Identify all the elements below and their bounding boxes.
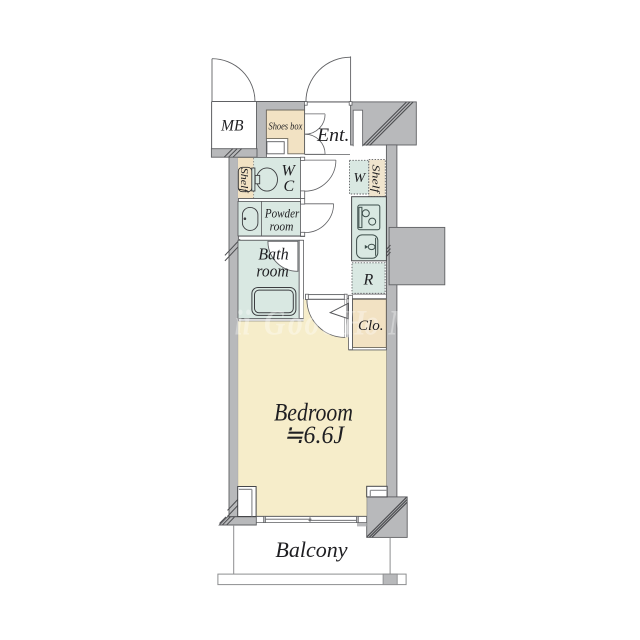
svg-text:Ent.: Ent. <box>316 125 350 146</box>
svg-text:W: W <box>282 163 297 180</box>
svg-text:Bath: Bath <box>258 245 289 264</box>
svg-text:Shelf: Shelf <box>238 168 250 194</box>
svg-text:o: o <box>322 304 337 343</box>
svg-text:M: M <box>388 304 417 343</box>
svg-text:room: room <box>256 262 288 281</box>
svg-text:C: C <box>284 178 295 195</box>
svg-text:≒6.6J: ≒6.6J <box>284 422 346 449</box>
svg-text:Clo.: Clo. <box>358 318 384 334</box>
svg-text:o: o <box>305 304 320 343</box>
svg-text:MB: MB <box>220 118 244 135</box>
svg-text:o: o <box>288 304 303 343</box>
svg-text:Balcony: Balcony <box>275 537 347 562</box>
svg-text:room: room <box>270 219 294 233</box>
svg-text:Powder: Powder <box>264 206 299 220</box>
svg-text:Shelf: Shelf <box>370 165 382 195</box>
svg-text:ii: ii <box>235 304 251 344</box>
svg-text:Shoes box: Shoes box <box>269 121 303 132</box>
svg-text:G: G <box>264 304 286 343</box>
svg-text:R: R <box>363 271 374 288</box>
svg-text:W: W <box>354 171 367 186</box>
